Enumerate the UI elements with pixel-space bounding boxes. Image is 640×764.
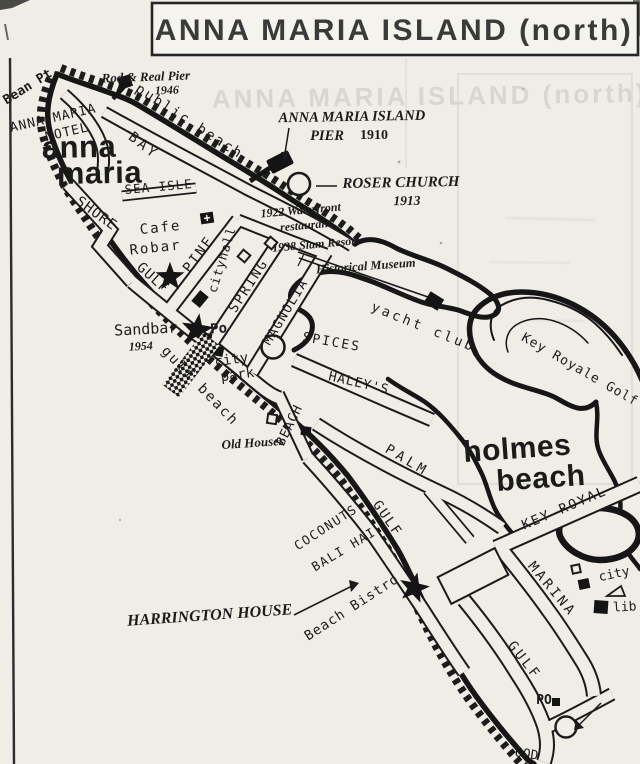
city-pier-label-1: ANNA MARIA ISLAND (277, 108, 425, 127)
building-square (571, 564, 580, 573)
city-pier-year: 1910 (360, 128, 388, 143)
roser-church-label: ROSER CHURCH (341, 174, 461, 192)
po-holmes-square (552, 698, 560, 706)
ghost-title: ANNA MARIA ISLAND (north) (212, 78, 640, 114)
sandbar-year: 1954 (128, 338, 153, 353)
city-pier-label-2: PIER (310, 128, 344, 144)
map-title: ANNA MARIA ISLAND (north) (155, 14, 634, 47)
scanned-map-page: ANNA MARIA ISLAND (north) ANNA MARIA ISL… (0, 0, 640, 764)
building-black (300, 426, 311, 436)
anna-maria-island-map: ANNA MARIA ISLAND (north) ANNA MARIA ISL… (0, 0, 640, 764)
po-holmes-label: PO (536, 693, 552, 708)
roser-church-year: 1913 (393, 193, 421, 208)
holmes-circle (556, 717, 577, 738)
roser-church-circle (288, 173, 310, 195)
library-label: lib (613, 599, 637, 615)
title-box: ANNA MARIA ISLAND (north) (152, 3, 638, 55)
old-house-square (267, 414, 277, 424)
church-building-icon (200, 212, 214, 225)
sandbar-label: Sandbar (114, 318, 178, 339)
library-building (594, 600, 609, 614)
town-holmes-beach-2: beach (495, 459, 586, 498)
po-anna-label: Po (210, 320, 228, 337)
